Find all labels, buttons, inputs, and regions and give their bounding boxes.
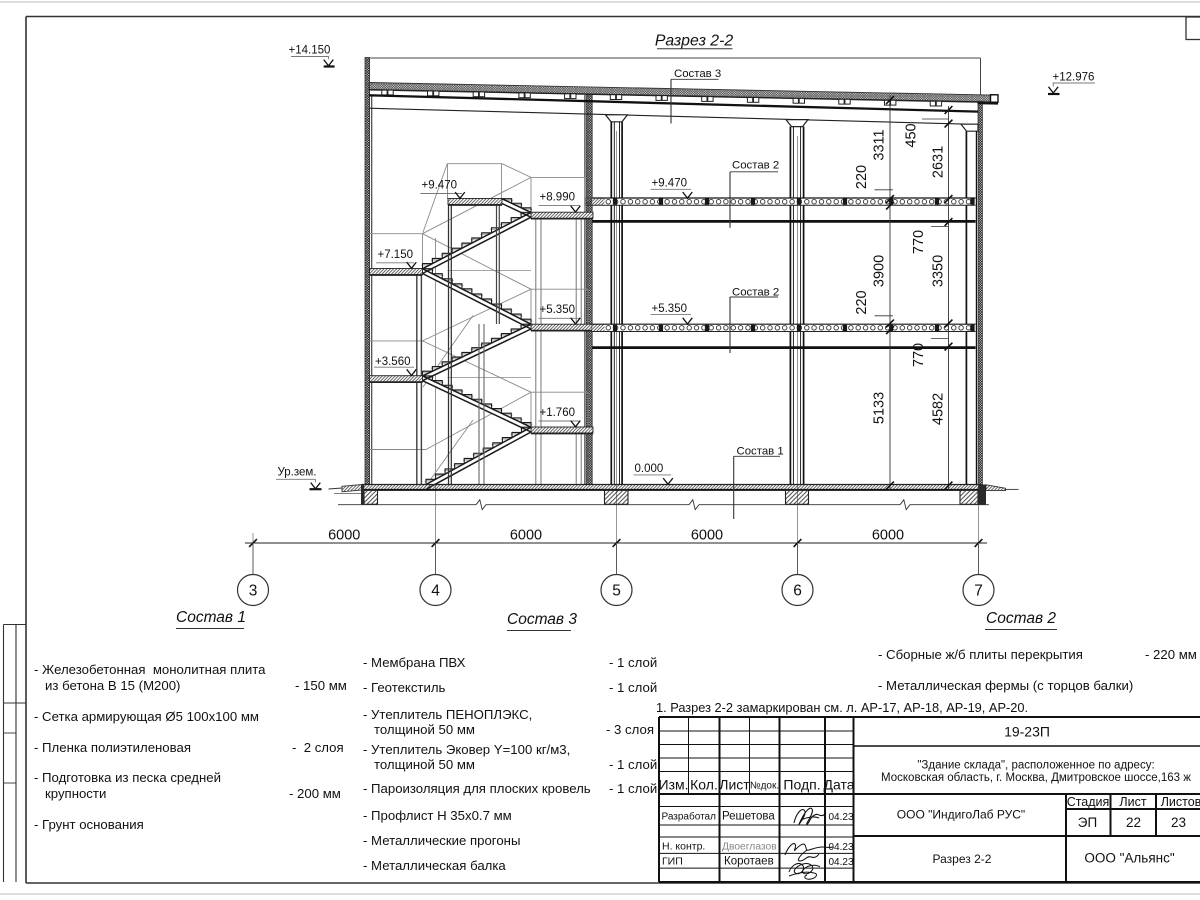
svg-text:Лист: Лист: [1119, 795, 1146, 809]
svg-text:Московская область, г. Москва,: Московская область, г. Москва, Дмитровск…: [881, 772, 1191, 784]
svg-text:Дата: Дата: [823, 777, 854, 793]
svg-text:ГИП: ГИП: [662, 856, 683, 868]
svg-text:Изм.: Изм.: [659, 777, 689, 793]
svg-text:ООО "Альянс": ООО "Альянс": [1084, 851, 1174, 866]
svg-text:23: 23: [1171, 815, 1186, 830]
svg-text:Стадия: Стадия: [1067, 795, 1110, 809]
svg-text:Листов: Листов: [1161, 795, 1200, 809]
svg-text:ЭП: ЭП: [1078, 815, 1097, 830]
svg-text:Двоеглазов: Двоеглазов: [722, 842, 777, 853]
svg-text:19-23П: 19-23П: [1004, 724, 1050, 740]
svg-text:"Здание склада", расположенное: "Здание склада", расположенное по адресу…: [917, 760, 1154, 772]
svg-text:ООО "ИндигоЛаб РУС": ООО "ИндигоЛаб РУС": [897, 808, 1025, 822]
svg-text:Н. контр.: Н. контр.: [662, 841, 705, 853]
svg-text:Разработал: Разработал: [662, 811, 717, 823]
svg-text:Коротаев: Коротаев: [724, 856, 774, 868]
svg-text:Лист: Лист: [719, 777, 750, 793]
svg-text:№док.: №док.: [750, 781, 779, 792]
svg-text:Подп.: Подп.: [783, 777, 820, 793]
svg-text:Кол.: Кол.: [690, 777, 718, 793]
svg-text:Решетова: Решетова: [722, 811, 775, 823]
svg-text:04.23: 04.23: [828, 857, 853, 868]
svg-text:Разрез 2-2: Разрез 2-2: [933, 852, 992, 866]
svg-text:04.23: 04.23: [828, 812, 853, 823]
svg-text:22: 22: [1126, 815, 1141, 830]
